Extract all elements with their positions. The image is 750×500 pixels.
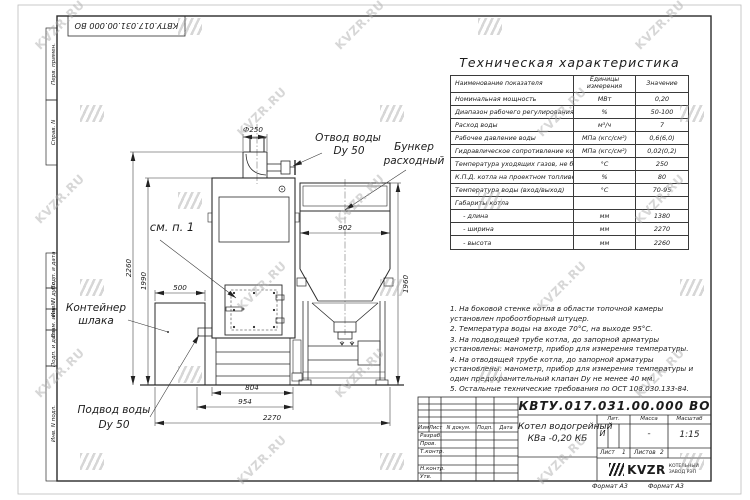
label-water-inlet-dy: Dy 50 [99,419,130,431]
title-block-name-2: КВа -0,20 КБ [518,434,597,444]
format-note-right: Формат А3 [648,483,684,490]
dim-total-height: 2260 [124,258,133,277]
svg-text:Подп. и дата: Подп. и дата [51,328,57,367]
sign-row-utv: Утв. [420,474,432,480]
kvzr-stripes-icon [609,463,624,476]
boiler-base [216,338,290,385]
table-row: Температура уходящих газов, не более°С25… [451,158,688,171]
dim-bunker-width: 902 [338,223,352,232]
header-col-podp: Подп. [476,425,494,431]
door-bolts [233,292,275,328]
table-row: Габариты котла [451,197,688,210]
table-row: - высотамм2260 [451,236,688,249]
label-slag-container-2: шлака [78,315,114,327]
mass-label: Масса [630,416,668,422]
spec-table-title: Техническая характеристика [450,55,689,70]
header-col-ndoc: N докум. [441,425,476,431]
table-row: - длинамм1380 [451,210,688,223]
kvzr-logo-sub1: КОТЕЛЬНЫЙ [669,464,699,470]
spec-col-name: Наименование показателя [451,76,574,93]
label-water-inlet: Подвод воды [78,404,151,416]
dim-boiler-width: 804 [245,383,259,392]
sign-row-razrab: Разраб. [420,433,442,439]
spec-header-row: Наименование показателя Единицы измерени… [451,76,688,93]
kvzr-logo-text: KVZR [627,463,666,477]
side-stamp-labels: Перв. примен. Справ. N Подп. и дата Инв.… [51,43,57,442]
water-outlet-valve [267,160,295,192]
top-stamp-number: КВТУ.017.031.00.000 ВО [74,21,178,31]
furnace-door [225,285,284,335]
chimney [243,138,267,178]
header-col-data: Дата [494,425,518,431]
dim-total-width: 2270 [263,413,282,422]
kvzr-logo-sub2: ЗАВОД РЭП [669,470,699,476]
sign-row-tkontr: Т.контр. [420,449,444,455]
mass-value: - [630,429,668,439]
table-row: Расход водым³/ч7 [451,119,688,132]
sheet-value: 1 [622,450,626,456]
table-row: Гидравлическое сопротивление котлаМПа (к… [451,145,688,158]
title-block-name-1: Котел водогрейный [518,422,597,432]
dim-bunker-height: 1960 [401,274,410,293]
sign-row-prov: Пров. [420,441,436,447]
slag-container [155,303,205,385]
table-row: - ширинамм2270 [451,223,688,236]
lit-value: И [597,429,608,438]
lit-label: Лит. [597,416,630,422]
dim-chimney: Ф250 [243,125,263,134]
note-item: 3. На подводящей трубе котла, до запорно… [450,335,700,354]
note-item: 5. Остальные технические требования по О… [450,384,700,394]
scale-label: Масштаб [668,416,711,422]
label-slag-container: Контейнер [66,302,126,314]
technical-notes: 1. На боковой стенке котла в области топ… [450,304,700,395]
scale-value: 1:15 [668,430,711,440]
sign-row-nkontr: Н.контр. [420,466,445,472]
dim-boiler-height: 1990 [139,271,148,290]
label-see-item-1: см. п. 1 [150,220,194,234]
format-note-left: Формат А3 [592,483,628,490]
screw-feeder [308,303,380,365]
boiler-assembly-drawing [140,124,404,385]
spec-col-value: Значение [636,76,688,93]
note-item: 1. На боковой стенке котла в области топ… [450,304,700,323]
centerlines [257,124,345,335]
sheets-value: 2 [660,450,664,456]
svg-text:Инв. N подл.: Инв. N подл. [51,405,57,442]
label-bunker-2: расходный [383,155,445,167]
dim-slag-width: 500 [173,283,187,292]
note-item: 2. Температура воды на входе 70°С, на вы… [450,324,700,334]
sheets-label: Листов [634,450,656,456]
bunker-frame [292,301,388,385]
table-row: Номинальная мощностьМВт0,20 [451,93,688,106]
company-logo: KVZR КОТЕЛЬНЫЙ ЗАВОД РЭП [599,459,709,480]
dim-base-width: 954 [238,397,252,406]
header-col-izm: Изм [418,425,429,431]
table-row: К.П.Д. котла на проектном топливе%80 [451,171,688,184]
svg-text:Справ. N: Справ. N [51,119,57,145]
title-block-number: КВТУ.017.031.00.000 ВО [518,399,711,413]
spec-table: Наименование показателя Единицы измерени… [450,75,689,250]
table-row: Рабочее давление водыМПа (кгс/см²)0,6(6,… [451,132,688,145]
table-row: Диапазон рабочего регулирования%50-100 [451,106,688,119]
table-row: Температура воды (вход/выход)°С70-95 [451,184,688,197]
label-water-outlet-dy: Dy 50 [334,145,365,157]
spec-col-units: Единицы измерения [574,76,636,93]
label-water-outlet: Отвод воды [315,132,381,144]
note-item: 4. На отводящей трубе котла, до запорной… [450,355,700,384]
sheet-label: Лист [600,450,615,456]
label-bunker: Бункер [394,141,434,153]
svg-text:Перв. примен.: Перв. примен. [51,43,57,85]
boiler-body [198,178,299,338]
header-col-list: Лист [429,425,441,431]
